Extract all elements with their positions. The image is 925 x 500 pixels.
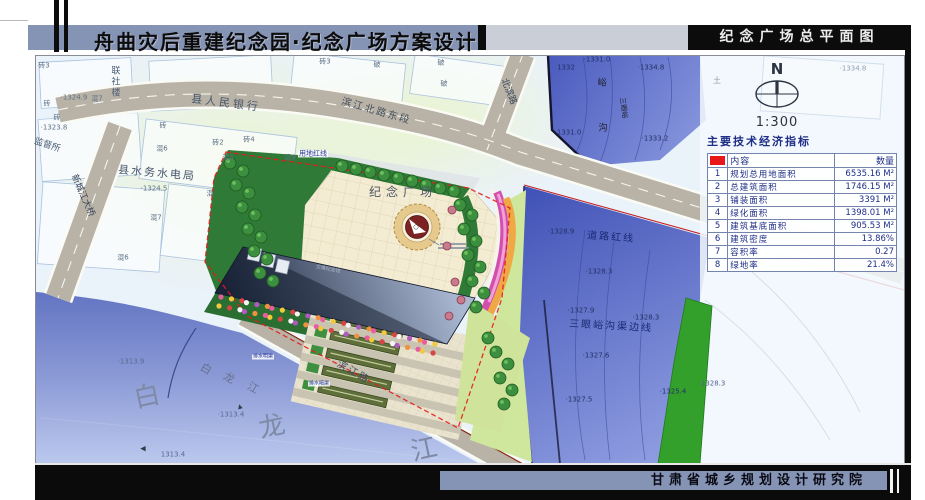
- indicator-table: 主要技术经济指标 内容数量 1规划总用地面积6535.16 M²2总建筑面积17…: [707, 133, 899, 272]
- table-row: 8绿地率21.4%: [708, 259, 897, 272]
- table-cell: 容积率: [728, 246, 834, 259]
- table-cell: 8: [708, 259, 728, 272]
- footer-band: 甘肃省城乡规划设计研究院: [440, 471, 887, 490]
- table-row: 7容积率0.27: [708, 246, 897, 259]
- table-cell: 6: [708, 233, 728, 246]
- indicator-table-grid: 内容数量 1规划总用地面积6535.16 M²2总建筑面积1746.15 M²3…: [707, 153, 897, 272]
- institute-name: 甘肃省城乡规划设计研究院: [651, 471, 867, 490]
- table-cell: 建筑密度: [728, 233, 834, 246]
- table-cell: 5: [708, 220, 728, 233]
- border-bar-2: [64, 0, 68, 52]
- table-cell: 3: [708, 194, 728, 207]
- margin-line: [0, 20, 28, 21]
- table-row: 6建筑密度13.86%: [708, 233, 897, 246]
- band-divider: [478, 25, 486, 50]
- table-col-header: [708, 154, 728, 168]
- north-label: N: [740, 60, 814, 78]
- table-cell: 0.27: [834, 246, 896, 259]
- footer-tick-2: [897, 469, 899, 493]
- table-cell: 1: [708, 168, 728, 181]
- table-col-header: 数量: [834, 154, 896, 168]
- table-row: 2总建筑面积1746.15 M²: [708, 181, 897, 194]
- drawing-sheet: 砖3联社楼·1324.9混7砖砖·1323.8监督所县人民银行砖砖2砖4混5混9…: [0, 0, 925, 500]
- sheet-main-title: 舟曲灾后重建纪念园·纪念广场方案设计: [94, 26, 478, 55]
- table-cell: 规划总用地面积: [728, 168, 834, 181]
- table-cell: 905.53 M²: [834, 220, 896, 233]
- table-cell: 4: [708, 207, 728, 220]
- border-bar-1: [54, 0, 59, 52]
- footer-tick-1: [890, 469, 893, 493]
- table-cell: 2: [708, 181, 728, 194]
- table-cell: 绿化面积: [728, 207, 834, 220]
- compass: N 1:300: [740, 60, 814, 130]
- north-arrow-icon: [748, 78, 806, 110]
- band-gray-segment: [486, 25, 688, 50]
- table-cell: 1398.01 M²: [834, 207, 896, 220]
- table-cell: 铺装面积: [728, 194, 834, 207]
- table-row: 4绿化面积1398.01 M²: [708, 207, 897, 220]
- table-cell: 建筑基底面积: [728, 220, 834, 233]
- table-col-header: 内容: [728, 154, 834, 168]
- table-cell: 6535.16 M²: [834, 168, 896, 181]
- sheet-subtitle-bar: 纪念广场总平面图: [688, 25, 911, 50]
- table-cell: 13.86%: [834, 233, 896, 246]
- right-frame-bar: [905, 49, 911, 466]
- indicator-table-title: 主要技术经济指标: [707, 133, 899, 149]
- table-cell: 绿地率: [728, 259, 834, 272]
- table-cell: 7: [708, 246, 728, 259]
- table-row: 5建筑基底面积905.53 M²: [708, 220, 897, 233]
- table-row: 3铺装面积3391 M²: [708, 194, 897, 207]
- table-cell: 21.4%: [834, 259, 896, 272]
- table-row: 1规划总用地面积6535.16 M²: [708, 168, 897, 181]
- title-band: 舟曲灾后重建纪念园·纪念广场方案设计: [28, 25, 480, 50]
- table-cell: 总建筑面积: [728, 181, 834, 194]
- table-cell: 3391 M²: [834, 194, 896, 207]
- scale-label: 1:300: [740, 115, 814, 130]
- table-cell: 1746.15 M²: [834, 181, 896, 194]
